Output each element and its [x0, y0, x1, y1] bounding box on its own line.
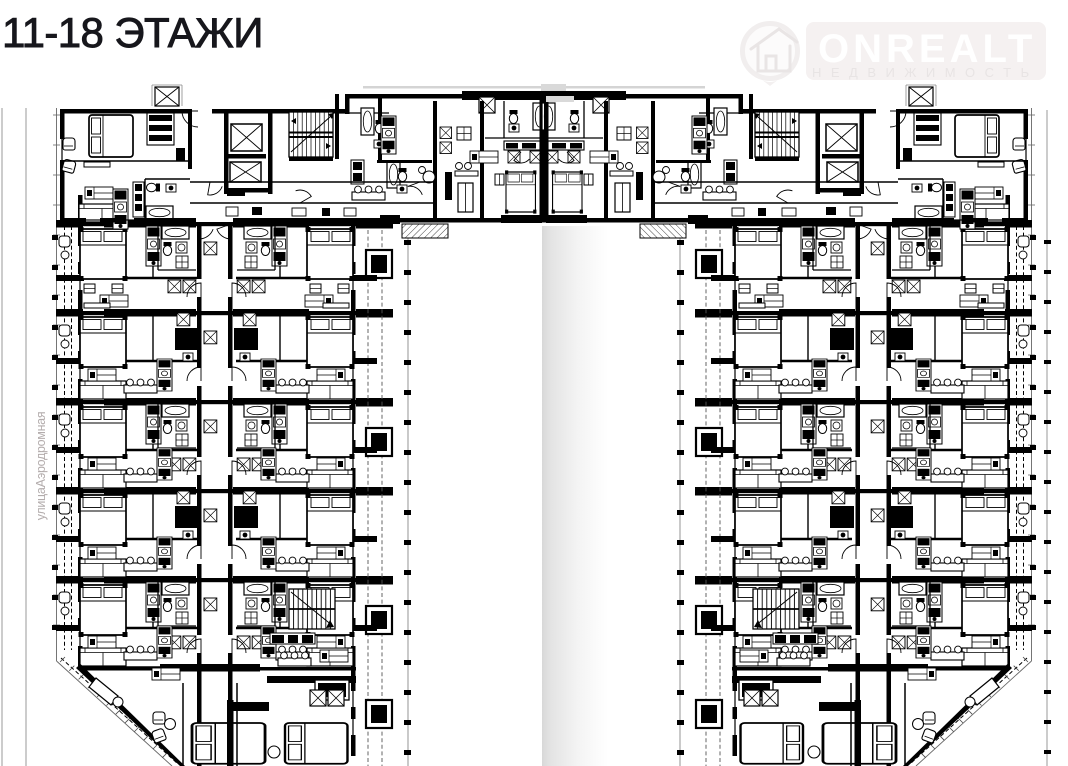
svg-text:11-18 ЭТАЖИ: 11-18 ЭТАЖИ [2, 9, 263, 56]
svg-text:НЕДВИЖИМОСТЬ: НЕДВИЖИМОСТЬ [812, 65, 1039, 80]
svg-text:улицаАэродромная: улицаАэродромная [34, 412, 48, 521]
